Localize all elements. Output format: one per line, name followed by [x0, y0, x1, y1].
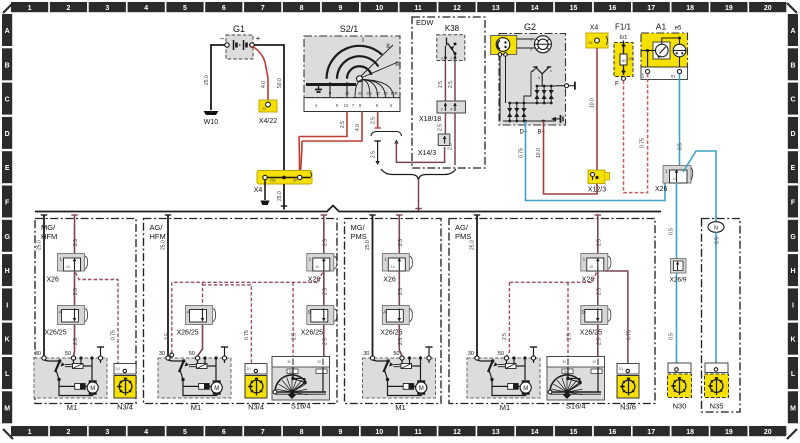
svg-text:10: 10	[66, 265, 70, 269]
svg-text:A1: A1	[656, 22, 667, 32]
svg-text:X26: X26	[47, 277, 60, 284]
svg-text:12: 12	[453, 5, 461, 12]
svg-text:14: 14	[531, 5, 539, 12]
svg-text:X4: X4	[590, 25, 599, 32]
svg-text:2: 2	[441, 57, 443, 61]
svg-text:2.5: 2.5	[292, 333, 298, 340]
svg-text:9: 9	[338, 5, 342, 12]
svg-text:2.5: 2.5	[164, 333, 170, 340]
svg-text:50: 50	[393, 351, 399, 357]
svg-text:18: 18	[686, 429, 694, 436]
svg-text:25.0: 25.0	[470, 240, 476, 250]
svg-text:30: 30	[345, 92, 349, 96]
svg-text:30: 30	[468, 351, 474, 357]
svg-text:C: C	[790, 97, 795, 104]
svg-text:7: 7	[261, 5, 265, 12]
svg-text:12: 12	[453, 429, 461, 436]
svg-text:0.5: 0.5	[678, 143, 684, 150]
svg-text:50: 50	[189, 351, 195, 357]
svg-text:2: 2	[67, 429, 71, 436]
svg-text:S16/4: S16/4	[291, 402, 311, 411]
svg-text:30: 30	[592, 360, 596, 364]
svg-text:2.5: 2.5	[73, 288, 79, 295]
svg-text:N3/6: N3/6	[620, 403, 636, 412]
svg-text:0.75: 0.75	[111, 330, 117, 340]
svg-text:20: 20	[764, 5, 772, 12]
svg-text:2.5: 2.5	[438, 124, 444, 131]
svg-text:1: 1	[530, 38, 532, 42]
svg-text:15: 15	[570, 5, 578, 12]
svg-text:X26/9: X26/9	[670, 277, 687, 284]
svg-text:2: 2	[67, 5, 71, 12]
svg-text:50: 50	[562, 360, 566, 364]
svg-text:2.5: 2.5	[371, 151, 377, 158]
svg-text:0.75: 0.75	[640, 138, 646, 148]
svg-text:X12/3: X12/3	[588, 187, 606, 194]
svg-text:2.5: 2.5	[597, 338, 603, 345]
svg-text:I: I	[792, 302, 794, 309]
svg-text:4: 4	[144, 429, 148, 436]
svg-text:10: 10	[375, 429, 383, 436]
svg-text:N: N	[714, 226, 718, 232]
svg-text:1: 1	[28, 5, 32, 12]
svg-text:M1: M1	[67, 403, 77, 412]
svg-text:4.0: 4.0	[355, 124, 361, 131]
svg-text:0.5: 0.5	[669, 228, 675, 235]
svg-text:2.5: 2.5	[398, 288, 404, 295]
svg-text:13: 13	[492, 429, 500, 436]
svg-text:10: 10	[589, 265, 593, 269]
svg-text:2.5: 2.5	[371, 117, 377, 124]
svg-text:K38: K38	[445, 24, 460, 33]
svg-text:F1/1: F1/1	[615, 23, 632, 32]
svg-text:X4: X4	[254, 187, 263, 194]
svg-text:2.5: 2.5	[597, 288, 603, 295]
svg-text:30: 30	[317, 360, 321, 364]
svg-text:2.5: 2.5	[323, 288, 329, 295]
svg-text:G: G	[790, 234, 796, 241]
svg-text:C: C	[5, 97, 10, 104]
svg-text:B+: B+	[538, 130, 546, 136]
svg-text:E: E	[5, 165, 10, 172]
svg-text:2/1: 2/1	[247, 367, 252, 371]
svg-text:0.5: 0.5	[669, 333, 675, 340]
svg-text:F: F	[5, 200, 10, 207]
svg-text:4: 4	[451, 108, 453, 112]
svg-text:v: v	[550, 69, 552, 73]
svg-text:X26/25: X26/25	[177, 330, 199, 337]
svg-text:A: A	[5, 28, 10, 35]
svg-text:25.0: 25.0	[161, 240, 167, 250]
svg-text:D: D	[308, 310, 311, 315]
svg-text:25.0: 25.0	[204, 75, 210, 85]
svg-text:HFM: HFM	[150, 232, 166, 241]
svg-text:0.75: 0.75	[519, 148, 525, 158]
svg-text:9: 9	[338, 429, 342, 436]
svg-text:M1: M1	[395, 403, 405, 412]
svg-text:30: 30	[35, 351, 41, 357]
svg-text:III: III	[395, 61, 401, 68]
svg-text:14: 14	[531, 429, 539, 436]
svg-text:15a: 15a	[629, 57, 635, 61]
svg-text:G2: G2	[524, 22, 536, 32]
svg-text:30: 30	[159, 351, 165, 357]
svg-text:10: 10	[391, 265, 395, 269]
svg-text:25.0: 25.0	[277, 191, 283, 201]
svg-text:15x: 15x	[366, 92, 372, 96]
svg-text:10: 10	[375, 5, 383, 12]
svg-text:X26/25: X26/25	[45, 330, 67, 337]
svg-text:P: P	[329, 92, 332, 96]
svg-text:18: 18	[686, 5, 694, 12]
svg-text:7: 7	[261, 429, 265, 436]
svg-text:4: 4	[530, 48, 532, 52]
svg-text:17: 17	[647, 5, 655, 12]
svg-text:6: 6	[222, 5, 226, 12]
svg-text:2.5: 2.5	[567, 333, 573, 340]
svg-text:AG/: AG/	[455, 223, 469, 232]
svg-text:2.5: 2.5	[438, 81, 444, 88]
svg-text:25a: 25a	[270, 179, 276, 183]
svg-text:B: B	[790, 62, 795, 69]
svg-text:2.5: 2.5	[340, 121, 346, 128]
svg-text:A: A	[383, 310, 386, 315]
svg-text:N3/4: N3/4	[248, 403, 264, 412]
svg-text:2.5: 2.5	[323, 239, 329, 246]
svg-text:M1: M1	[500, 403, 510, 412]
svg-text:3: 3	[105, 429, 109, 436]
svg-text:G1: G1	[233, 24, 245, 34]
svg-text:PMS: PMS	[351, 232, 367, 241]
svg-text:D: D	[582, 310, 585, 315]
svg-text:10: 10	[344, 103, 349, 108]
svg-text:50.0: 50.0	[277, 78, 283, 88]
svg-text:M: M	[90, 386, 95, 392]
svg-text:X18/18: X18/18	[419, 116, 441, 123]
svg-text:6/1: 6/1	[620, 35, 628, 41]
svg-text:M1: M1	[191, 403, 201, 412]
svg-text:A: A	[790, 28, 795, 35]
svg-text:X26: X26	[383, 277, 396, 284]
svg-text:6: 6	[222, 429, 226, 436]
svg-text:L: L	[5, 371, 10, 378]
svg-text:X26/25: X26/25	[301, 330, 323, 337]
svg-text:PMS: PMS	[455, 232, 471, 241]
svg-text:15: 15	[383, 92, 387, 96]
svg-text:8: 8	[300, 429, 304, 436]
svg-text:F: F	[615, 81, 619, 88]
svg-text:M: M	[523, 386, 528, 392]
svg-text:S2/1: S2/1	[340, 24, 359, 34]
svg-text:2/1: 2/1	[619, 367, 624, 371]
svg-text:2.5: 2.5	[398, 239, 404, 246]
svg-text:2/1: 2/1	[116, 367, 121, 371]
svg-text:11: 11	[414, 5, 422, 12]
svg-text:II: II	[386, 43, 390, 50]
svg-text:0.5: 0.5	[715, 237, 721, 244]
svg-text:10.0: 10.0	[590, 98, 596, 108]
svg-text:K: K	[790, 337, 795, 344]
svg-text:N35: N35	[710, 402, 724, 411]
svg-text:19: 19	[725, 429, 733, 436]
svg-text:19: 19	[725, 5, 733, 12]
svg-text:H: H	[5, 268, 10, 275]
svg-text:I: I	[6, 302, 8, 309]
svg-text:I: I	[362, 37, 364, 44]
svg-text:D: D	[5, 131, 10, 138]
svg-text:B: B	[5, 62, 10, 69]
svg-text:1: 1	[451, 57, 453, 61]
svg-text:X4/22: X4/22	[259, 118, 277, 125]
svg-text:X26/25: X26/25	[580, 330, 602, 337]
svg-text:13: 13	[492, 5, 500, 12]
svg-text:61: 61	[671, 74, 676, 79]
svg-text:N3/4: N3/4	[117, 403, 133, 412]
svg-text:MG/: MG/	[351, 223, 366, 232]
svg-text:D: D	[790, 131, 795, 138]
svg-text:10: 10	[315, 265, 319, 269]
svg-text:2.5: 2.5	[73, 239, 79, 246]
svg-text:AG/: AG/	[150, 223, 164, 232]
svg-text:17: 17	[647, 429, 655, 436]
svg-text:30: 30	[363, 351, 369, 357]
svg-text:30: 30	[622, 59, 626, 63]
svg-text:50: 50	[287, 360, 291, 364]
svg-text:L: L	[791, 371, 796, 378]
svg-text:1: 1	[28, 429, 32, 436]
svg-text:F: F	[791, 200, 796, 207]
svg-text:30: 30	[262, 107, 266, 111]
svg-text:2.5: 2.5	[323, 338, 329, 345]
svg-text:N30: N30	[673, 402, 687, 411]
svg-text:0.75: 0.75	[244, 330, 250, 340]
svg-text:+: +	[256, 34, 261, 43]
svg-text:30: 30	[293, 178, 297, 182]
svg-text:M: M	[790, 405, 796, 412]
svg-text:25.0: 25.0	[37, 240, 43, 250]
svg-text:W10: W10	[204, 119, 219, 126]
svg-text:3: 3	[105, 5, 109, 12]
svg-text:30: 30	[358, 92, 362, 96]
svg-text:11: 11	[414, 429, 422, 436]
svg-text:50: 50	[498, 351, 504, 357]
svg-text:10.0: 10.0	[536, 148, 542, 158]
svg-text:X26: X26	[655, 186, 668, 193]
svg-text:0.75: 0.75	[627, 330, 633, 340]
svg-text:M: M	[214, 386, 219, 392]
svg-text:M: M	[419, 386, 424, 392]
svg-text:15R: 15R	[391, 92, 398, 96]
svg-text:EDW: EDW	[416, 18, 434, 27]
svg-text:2.5: 2.5	[597, 239, 603, 246]
svg-text:4: 4	[144, 5, 148, 12]
svg-text:X14/3: X14/3	[418, 150, 436, 157]
svg-text:16: 16	[609, 429, 617, 436]
svg-text:50: 50	[65, 351, 71, 357]
svg-text:20: 20	[764, 429, 772, 436]
svg-text:e5: e5	[675, 26, 682, 32]
svg-text:25.0: 25.0	[365, 240, 371, 250]
svg-text:M: M	[4, 405, 10, 412]
svg-text:E: E	[791, 165, 796, 172]
svg-text:S16/4: S16/4	[566, 402, 586, 411]
svg-text:A: A	[59, 310, 62, 315]
svg-text:2.5: 2.5	[502, 333, 508, 340]
svg-text:15: 15	[570, 429, 578, 436]
svg-text:2: 2	[441, 108, 443, 112]
svg-text:10: 10	[673, 177, 677, 181]
svg-text:1: 1	[642, 74, 645, 80]
svg-text:A: A	[187, 310, 190, 315]
svg-text:2.5: 2.5	[73, 338, 79, 345]
svg-text:5: 5	[183, 429, 187, 436]
svg-text:G: G	[4, 234, 10, 241]
svg-text:–: –	[220, 34, 225, 43]
svg-text:5: 5	[183, 5, 187, 12]
svg-text:52: 52	[376, 92, 380, 96]
svg-text:D+: D+	[520, 130, 528, 136]
svg-text:K: K	[5, 337, 10, 344]
svg-text:4.0: 4.0	[261, 81, 267, 88]
svg-text:16: 16	[609, 5, 617, 12]
svg-text:30: 30	[589, 41, 593, 45]
svg-text:H: H	[790, 268, 795, 275]
svg-text:8: 8	[300, 5, 304, 12]
svg-text:2.5: 2.5	[398, 338, 404, 345]
svg-text:2.5: 2.5	[448, 81, 454, 88]
